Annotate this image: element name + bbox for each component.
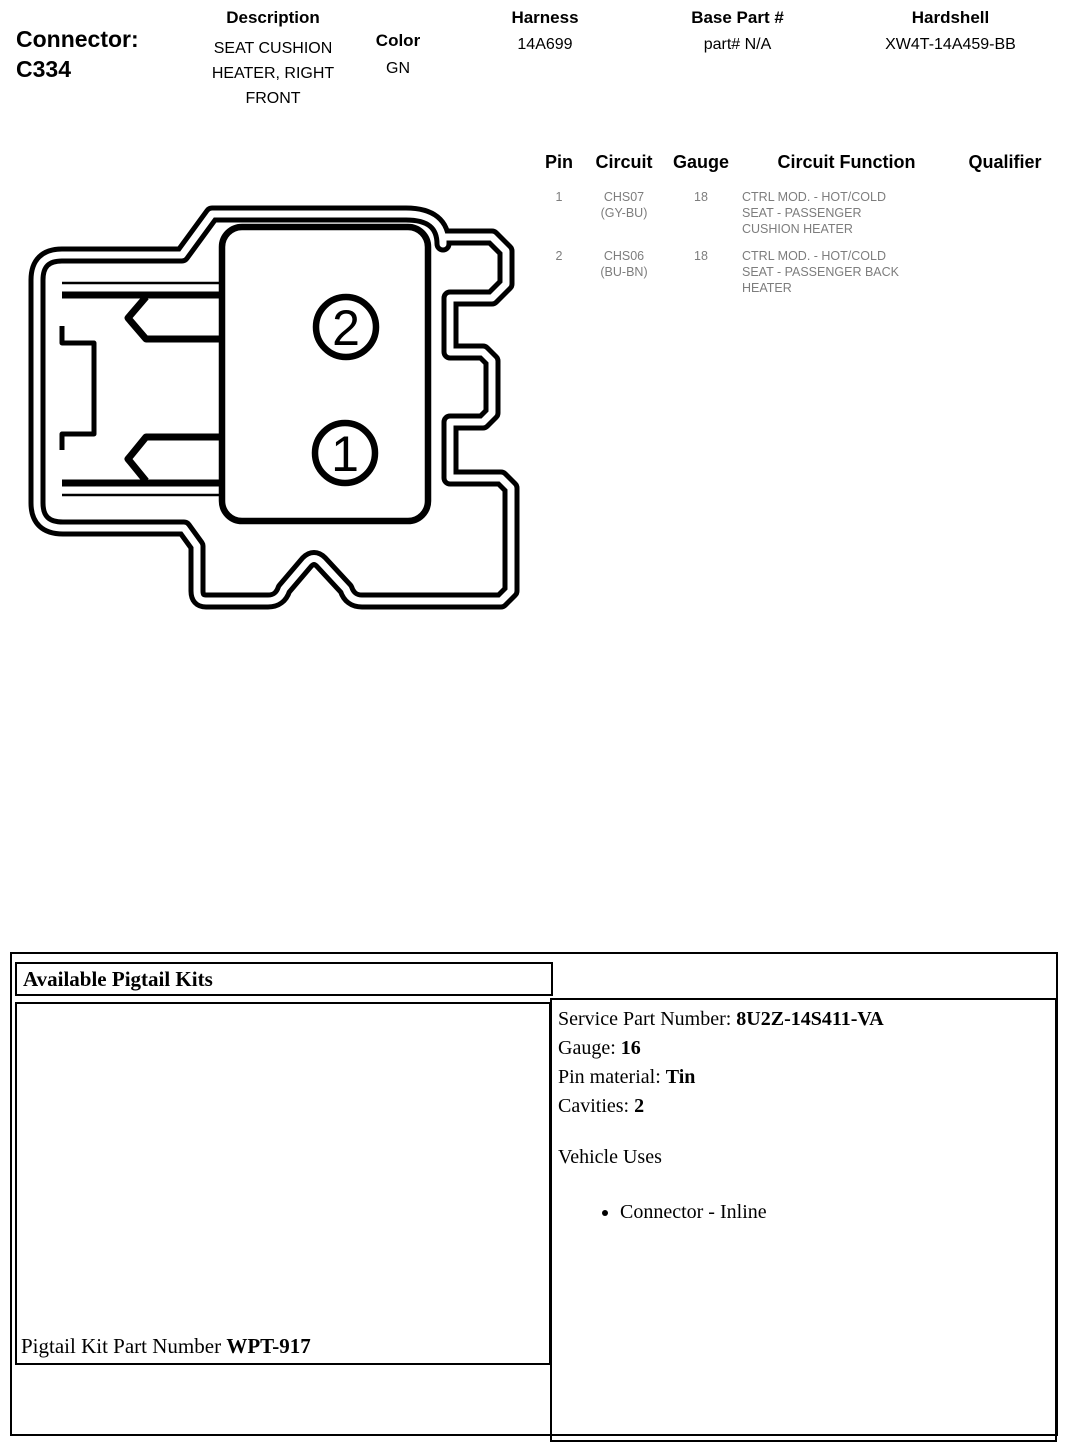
harness-header: Harness <box>478 8 612 28</box>
hardshell-value: XW4T-14A459-BB <box>858 36 1043 54</box>
gauge-value: 18 <box>668 248 734 296</box>
connector-face-drawing: 2 1 <box>18 186 523 618</box>
table-row: 1 CHS07 (GY-BU) 18 CTRL MOD. - HOT/COLD … <box>538 189 1053 237</box>
description-value: SEAT CUSHION HEATER, RIGHT FRONT <box>185 36 361 111</box>
gauge-value: 18 <box>668 189 734 237</box>
pin-number: 1 <box>538 189 580 237</box>
base-part-header: Base Part # <box>655 8 820 28</box>
qualifier-value <box>959 248 1051 296</box>
circuit-function: CTRL MOD. - HOT/COLD SEAT - PASSENGER BA… <box>734 248 959 296</box>
vehicle-use-item: Connector - Inline <box>620 1198 1049 1227</box>
hardshell-header: Hardshell <box>858 8 1043 28</box>
pigtail-kits-title: Available Pigtail Kits <box>15 962 553 996</box>
description-header: Description <box>185 8 361 28</box>
qualifier-value <box>959 189 1051 237</box>
connector-title: Connector: C334 <box>16 24 186 84</box>
pigtail-kit-cell: Pigtail Kit Part Number WPT-917 <box>15 1002 551 1365</box>
pin-material-label: Pin material: <box>558 1066 666 1088</box>
color-value: GN <box>358 60 438 78</box>
cavity-label-1: 1 <box>331 426 359 482</box>
pigtail-kits-box: Available Pigtail Kits Pigtail Kit Part … <box>10 952 1058 1436</box>
service-part-line: Service Part Number: 8U2Z-14S411-VA <box>558 1005 1049 1034</box>
pin-material-line: Pin material: Tin <box>558 1063 1049 1092</box>
qualifier-column-header: Qualifier <box>959 152 1051 173</box>
cavity-label-2: 2 <box>332 300 360 356</box>
circuit-code: CHS07 (GY-BU) <box>580 189 668 237</box>
pin-number: 2 <box>538 248 580 296</box>
function-column-header: Circuit Function <box>734 152 959 173</box>
service-part-label: Service Part Number: <box>558 1008 736 1030</box>
pigtail-kit-label: Pigtail Kit Part Number <box>21 1334 226 1358</box>
circuit-code: CHS06 (BU-BN) <box>580 248 668 296</box>
cavities-value: 2 <box>634 1095 644 1117</box>
pin-table: Pin Circuit Gauge Circuit Function Quali… <box>538 152 1053 296</box>
pigtail-kit-line: Pigtail Kit Part Number WPT-917 <box>21 1334 311 1359</box>
color-header: Color <box>358 31 438 51</box>
cavities-line: Cavities: 2 <box>558 1092 1049 1121</box>
service-part-cell: Service Part Number: 8U2Z-14S411-VA Gaug… <box>550 998 1057 1442</box>
harness-value: 14A699 <box>478 36 612 54</box>
connector-id: C334 <box>16 54 186 84</box>
pin-column-header: Pin <box>538 152 580 173</box>
vehicle-uses-heading: Vehicle Uses <box>558 1143 1049 1172</box>
pigtail-kit-number: WPT-917 <box>226 1334 310 1358</box>
gauge-label: Gauge: <box>558 1037 621 1059</box>
connector-label: Connector: <box>16 24 186 54</box>
pin-table-header-row: Pin Circuit Gauge Circuit Function Quali… <box>538 152 1053 173</box>
connector-diagram: 2 1 <box>18 186 523 618</box>
gauge-line: Gauge: 16 <box>558 1034 1049 1063</box>
base-part-value: part# N/A <box>655 36 820 54</box>
pin-material-value: Tin <box>666 1066 696 1088</box>
circuit-function: CTRL MOD. - HOT/COLD SEAT - PASSENGER CU… <box>734 189 959 237</box>
vehicle-uses-list: Connector - Inline <box>558 1198 1049 1227</box>
circuit-column-header: Circuit <box>580 152 668 173</box>
cavities-label: Cavities: <box>558 1095 634 1117</box>
service-part-number: 8U2Z-14S411-VA <box>736 1008 883 1030</box>
gauge-column-header: Gauge <box>668 152 734 173</box>
gauge-number: 16 <box>621 1037 641 1059</box>
table-row: 2 CHS06 (BU-BN) 18 CTRL MOD. - HOT/COLD … <box>538 248 1053 296</box>
